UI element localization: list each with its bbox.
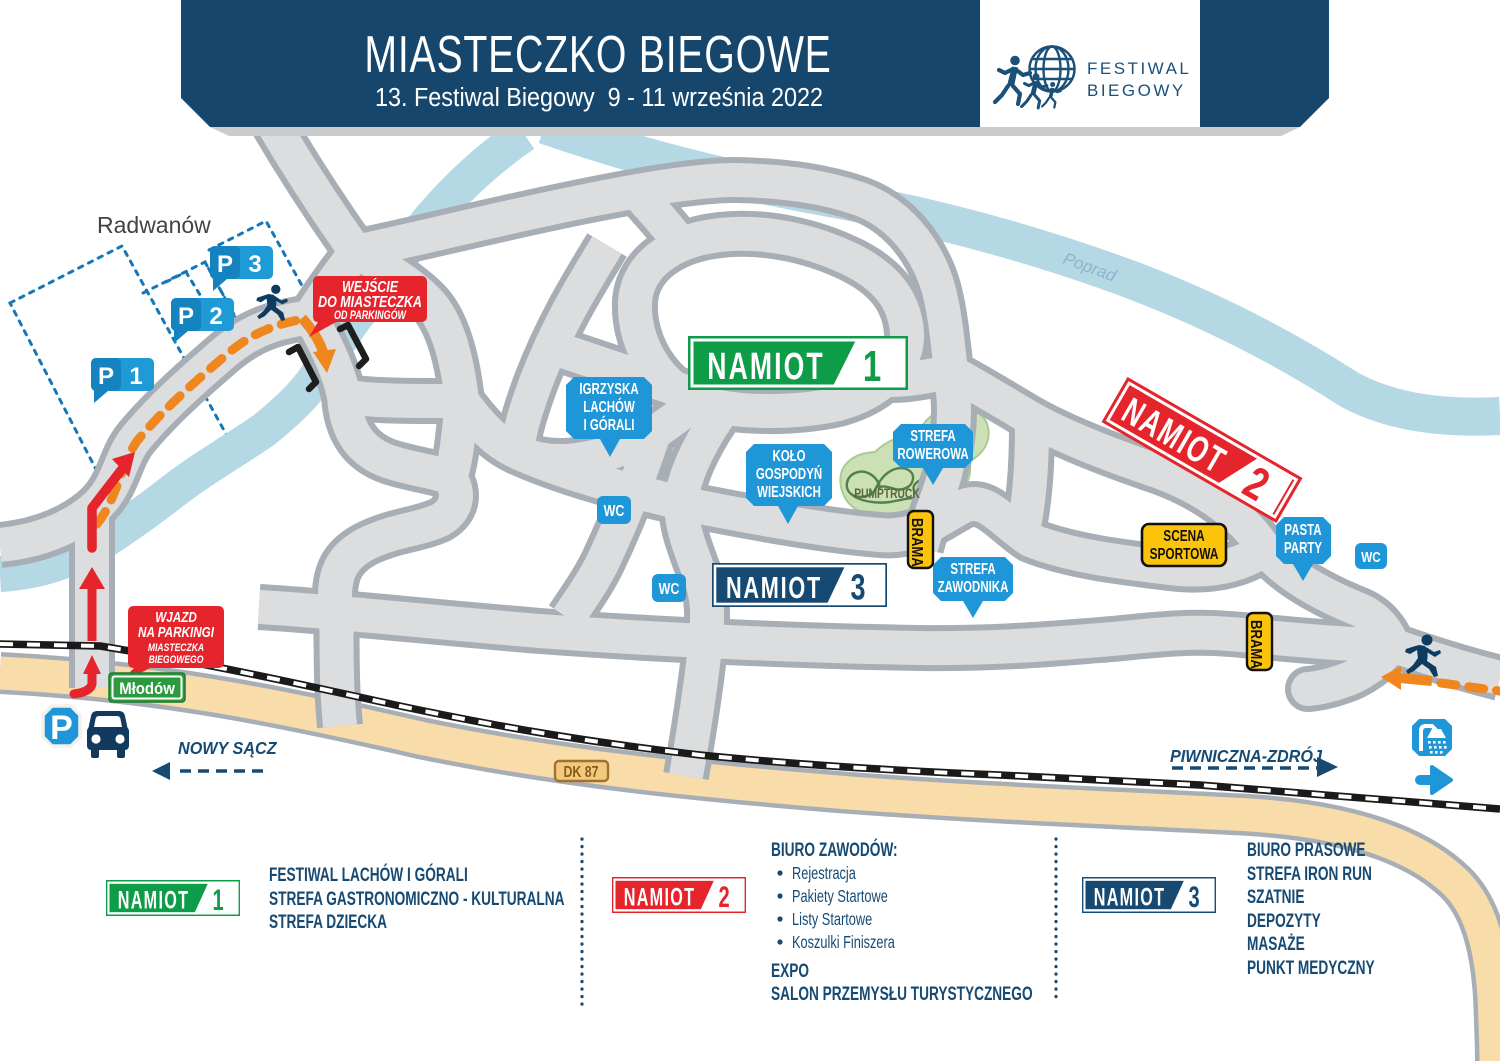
- svg-text:STREFA: STREFA: [910, 427, 955, 444]
- svg-text:P: P: [178, 303, 194, 330]
- svg-text:PARTY: PARTY: [1284, 539, 1322, 556]
- svg-text:STREFA IRON RUN: STREFA IRON RUN: [1247, 863, 1372, 885]
- svg-text:BIURO PRASOWE: BIURO PRASOWE: [1247, 839, 1366, 861]
- svg-text:SALON PRZEMYSŁU TURYSTYCZNEGO: SALON PRZEMYSŁU TURYSTYCZNEGO: [771, 983, 1033, 1005]
- svg-text:DK 87: DK 87: [563, 763, 598, 781]
- svg-text:3: 3: [850, 567, 865, 608]
- svg-text:DEPOZYTY: DEPOZYTY: [1247, 910, 1321, 932]
- svg-text:WC: WC: [659, 581, 680, 599]
- svg-text:OD PARKINGÓW: OD PARKINGÓW: [334, 308, 407, 322]
- svg-text:DO MIASTECZKA: DO MIASTECZKA: [318, 294, 422, 312]
- svg-text:13. Festiwal Biegowy 9 - 11 w: 13. Festiwal Biegowy 9 - 11 września 202…: [375, 84, 823, 112]
- svg-text:NAMIOT: NAMIOT: [118, 886, 190, 915]
- svg-text:P: P: [217, 251, 233, 278]
- svg-text:BIURO ZAWODÓW:: BIURO ZAWODÓW:: [771, 839, 898, 861]
- svg-text:LACHÓW: LACHÓW: [583, 398, 635, 415]
- svg-text:NAMIOT: NAMIOT: [624, 883, 696, 912]
- svg-text:NA PARKINGI: NA PARKINGI: [138, 624, 214, 641]
- svg-text:MASAŻE: MASAŻE: [1247, 933, 1305, 955]
- svg-text:P: P: [50, 709, 73, 747]
- svg-text:PASTA: PASTA: [1284, 521, 1321, 538]
- svg-text:Listy Startowe: Listy Startowe: [792, 910, 872, 929]
- svg-text:ZAWODNIKA: ZAWODNIKA: [938, 578, 1009, 595]
- svg-text:1: 1: [212, 884, 223, 917]
- svg-text:WC: WC: [1361, 549, 1381, 566]
- svg-text:BIEGOWY: BIEGOWY: [1087, 81, 1186, 100]
- svg-text:IGRZYSKA: IGRZYSKA: [579, 380, 638, 397]
- svg-text:SPORTOWA: SPORTOWA: [1150, 544, 1219, 562]
- svg-text:STREFA DZIECKA: STREFA DZIECKA: [269, 911, 387, 933]
- svg-text:STREFA GASTRONOMICZNO - KULTUR: STREFA GASTRONOMICZNO - KULTURALNA: [269, 888, 565, 910]
- svg-text:1: 1: [129, 363, 142, 390]
- svg-text:Młodów: Młodów: [119, 680, 175, 698]
- svg-text:STREFA: STREFA: [950, 560, 995, 577]
- svg-text:Pakiety Startowe: Pakiety Startowe: [792, 887, 888, 906]
- svg-text:WC: WC: [604, 503, 625, 521]
- svg-text:PUNKT MEDYCZNY: PUNKT MEDYCZNY: [1247, 957, 1375, 979]
- svg-text:FESTIWAL: FESTIWAL: [1087, 59, 1191, 78]
- svg-text:3: 3: [1188, 881, 1199, 914]
- svg-text:SCENA: SCENA: [1163, 526, 1204, 544]
- svg-text:FESTIWAL LACHÓW I GÓRALI: FESTIWAL LACHÓW I GÓRALI: [269, 864, 468, 886]
- svg-text:1: 1: [863, 343, 881, 392]
- svg-text:MIASTECZKA: MIASTECZKA: [148, 642, 204, 654]
- svg-text:2: 2: [209, 303, 222, 330]
- svg-text:GOSPODYŃ: GOSPODYŃ: [756, 465, 822, 482]
- svg-text:SZATNIE: SZATNIE: [1247, 886, 1304, 908]
- svg-text:Koszulki Finiszera: Koszulki Finiszera: [792, 933, 895, 952]
- svg-text:PIWNICZNA-ZDRÓJ: PIWNICZNA-ZDRÓJ: [1170, 746, 1322, 766]
- svg-text:I GÓRALI: I GÓRALI: [584, 416, 635, 433]
- svg-text:NAMIOT: NAMIOT: [707, 344, 824, 387]
- svg-text:KOŁO: KOŁO: [772, 447, 805, 464]
- svg-text:Radwanów: Radwanów: [97, 212, 211, 238]
- svg-text:WIEJSKICH: WIEJSKICH: [757, 483, 821, 500]
- svg-text:2: 2: [718, 881, 729, 914]
- svg-text:NAMIOT: NAMIOT: [726, 570, 822, 605]
- svg-text:3: 3: [248, 251, 261, 278]
- svg-text:Rejestracja: Rejestracja: [792, 864, 856, 883]
- svg-text:NAMIOT: NAMIOT: [1094, 883, 1166, 912]
- svg-text:BRAMA: BRAMA: [908, 518, 925, 567]
- svg-text:PUMPTRUCK: PUMPTRUCK: [854, 486, 920, 502]
- svg-text:BRAMA: BRAMA: [1247, 620, 1264, 669]
- svg-text:EXPO: EXPO: [771, 960, 809, 982]
- svg-text:ROWEROWA: ROWEROWA: [897, 445, 968, 462]
- svg-text:NOWY SĄCZ: NOWY SĄCZ: [178, 738, 277, 758]
- svg-text:P: P: [98, 363, 114, 390]
- svg-text:MIASTECZKO BIEGOWE: MIASTECZKO BIEGOWE: [364, 25, 831, 84]
- svg-text:BIEGOWEGO: BIEGOWEGO: [149, 654, 204, 666]
